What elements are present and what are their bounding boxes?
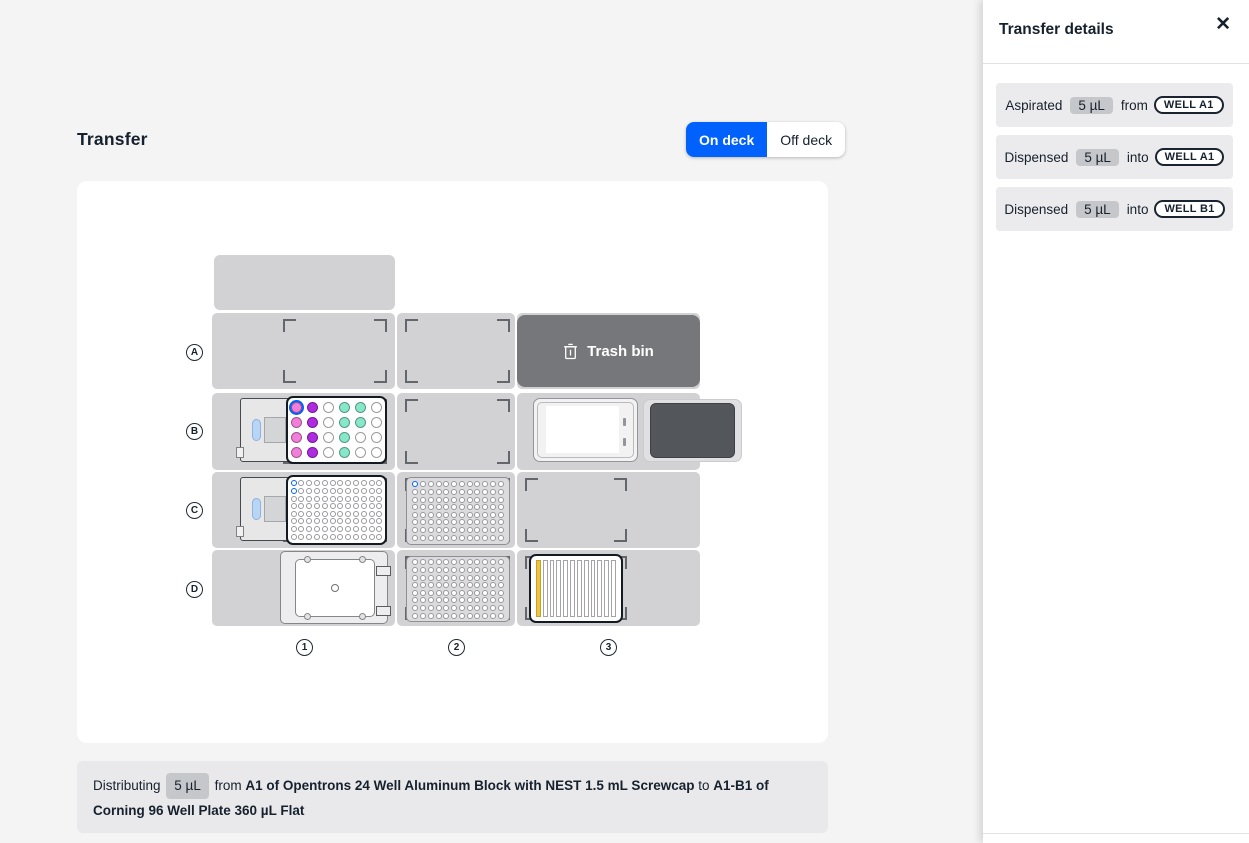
deck-map: Trash bin — [77, 181, 828, 743]
column-label-1: 1 — [296, 639, 313, 656]
well-pill: WELL A1 — [1155, 148, 1225, 166]
center-anchor-icon — [331, 584, 339, 592]
latch-icon — [376, 566, 391, 576]
module-display-icon — [264, 496, 286, 522]
destination-plate-wells — [288, 477, 385, 543]
plate-c2-wells — [407, 478, 509, 544]
event-action: Dispensed — [1005, 150, 1069, 165]
latch-icon — [376, 606, 391, 616]
summary-to-word: to — [698, 778, 709, 793]
module-notch — [236, 447, 244, 458]
on-deck-button[interactable]: On deck — [686, 122, 767, 157]
column-label-2: 2 — [448, 639, 465, 656]
destination-plate[interactable] — [286, 475, 387, 545]
module-indicator-icon — [252, 419, 261, 441]
slot-marks-b2 — [405, 399, 510, 464]
row-label-d: D — [186, 581, 203, 598]
event-row-aspirated: Aspirated 5 µL from WELL A1 — [996, 83, 1233, 127]
module-indicator-icon — [252, 498, 261, 520]
divider — [983, 833, 1249, 834]
aluminum-block[interactable] — [286, 396, 387, 464]
slot-marks-a1 — [283, 319, 387, 383]
screw-icon — [304, 613, 311, 620]
panel-title: Transfer details — [999, 21, 1114, 39]
summary-from-word: from — [215, 778, 242, 793]
plate-d2[interactable] — [406, 556, 510, 622]
transfer-event-list: Aspirated 5 µL from WELL A1 Dispensed 5 … — [996, 83, 1233, 239]
event-volume-badge: 5 µL — [1070, 97, 1113, 114]
row-label-c: C — [186, 502, 203, 519]
event-preposition: into — [1127, 150, 1149, 165]
plate-c2[interactable] — [406, 477, 510, 545]
summary-action: Distributing — [93, 778, 161, 793]
screw-icon — [359, 613, 366, 620]
event-row-dispensed-1: Dispensed 5 µL into WELL A1 — [996, 135, 1233, 179]
event-row-dispensed-2: Dispensed 5 µL into WELL B1 — [996, 187, 1233, 231]
deck-toggle: On deck Off deck — [686, 122, 845, 157]
well-pill: WELL B1 — [1154, 200, 1224, 218]
row-label-b: B — [186, 423, 203, 440]
trash-icon — [563, 343, 578, 360]
module-notch — [236, 526, 244, 537]
heater-shaker-module[interactable] — [280, 551, 388, 624]
aluminum-block-wells — [288, 398, 385, 462]
row-label-a: A — [186, 344, 203, 361]
reader-vent — [623, 438, 626, 446]
staging-area-slot — [214, 255, 395, 310]
reader-window — [546, 406, 619, 453]
summary-volume-badge: 5 µL — [166, 773, 209, 799]
event-volume-badge: 5 µL — [1076, 149, 1119, 166]
absorbance-reader[interactable] — [533, 398, 638, 462]
heater-shaker-plate — [295, 559, 375, 617]
reader-lid[interactable] — [650, 403, 735, 458]
summary-source: A1 of Opentrons 24 Well Aluminum Block w… — [245, 778, 694, 793]
transfer-summary-banner: Distributing 5 µL from A1 of Opentrons 2… — [77, 761, 828, 833]
transfer-details-panel: Transfer details ✕ Aspirated 5 µL from W… — [983, 0, 1249, 843]
event-preposition: into — [1127, 202, 1149, 217]
tip-rack[interactable] — [529, 554, 623, 623]
event-action: Aspirated — [1005, 98, 1062, 113]
column-label-3: 3 — [600, 639, 617, 656]
plate-d2-wells — [407, 557, 509, 621]
slot-marks-a2 — [405, 319, 510, 383]
divider — [983, 63, 1249, 64]
slot-marks-c3 — [525, 478, 627, 542]
reader-vent — [623, 418, 626, 426]
page-title: Transfer — [77, 129, 148, 150]
module-display-icon — [264, 417, 286, 443]
trash-bin-label: Trash bin — [587, 343, 654, 360]
close-icon[interactable]: ✕ — [1215, 15, 1231, 34]
screw-icon — [304, 556, 311, 563]
off-deck-button[interactable]: Off deck — [767, 122, 845, 157]
event-action: Dispensed — [1004, 202, 1068, 217]
event-preposition: from — [1121, 98, 1148, 113]
well-pill: WELL A1 — [1154, 96, 1224, 114]
trash-bin[interactable]: Trash bin — [517, 315, 700, 387]
event-volume-badge: 5 µL — [1076, 201, 1119, 218]
screw-icon — [359, 556, 366, 563]
